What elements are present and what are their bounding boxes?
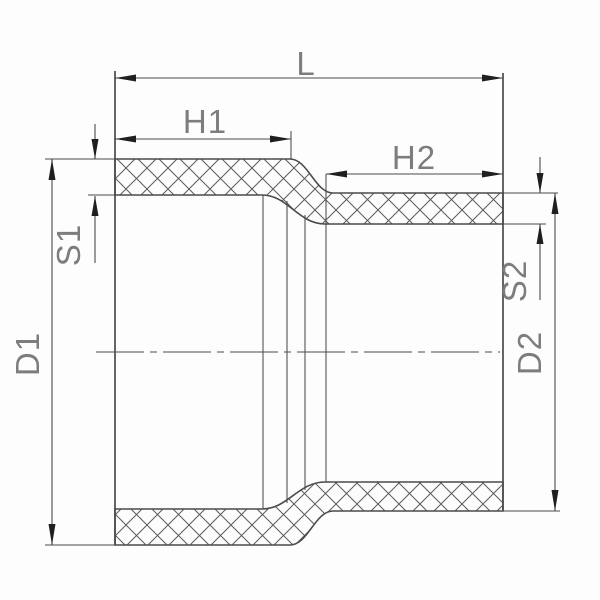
arrow-up-icon [552, 193, 559, 214]
arrow-down-icon [92, 139, 99, 159]
dimension-L: L [115, 45, 503, 82]
arrow-down-icon [552, 490, 559, 511]
arrow-down-icon [537, 173, 544, 193]
label-L: L [296, 45, 315, 82]
label-D1: D1 [9, 332, 46, 376]
reducer-body [96, 71, 503, 545]
arrow-up-icon [92, 196, 99, 216]
label-S2: S2 [496, 260, 533, 302]
arrow-right-icon [482, 75, 503, 82]
label-S1: S1 [50, 224, 87, 266]
arrow-right-icon [270, 136, 291, 143]
drawing-canvas: L H1 H2 S1 S2 D1 [0, 0, 600, 600]
arrow-left-icon [115, 75, 136, 82]
dimension-H1: H1 [115, 103, 291, 159]
dimension-H2: H2 [326, 139, 503, 178]
dimension-D2: D2 [503, 193, 560, 511]
top-wall-section [115, 159, 503, 224]
arrow-down-icon [49, 524, 56, 545]
arrow-right-icon [482, 171, 503, 178]
dimension-S1: S1 [50, 124, 115, 266]
arrow-up-icon [537, 224, 544, 244]
arrow-left-icon [326, 171, 347, 178]
label-H1: H1 [183, 103, 227, 140]
label-H2: H2 [392, 139, 436, 176]
label-D2: D2 [511, 331, 548, 375]
arrow-left-icon [115, 136, 136, 143]
bottom-wall-section [115, 482, 503, 545]
transition-edge-lines [263, 174, 326, 509]
arrow-up-icon [49, 159, 56, 180]
